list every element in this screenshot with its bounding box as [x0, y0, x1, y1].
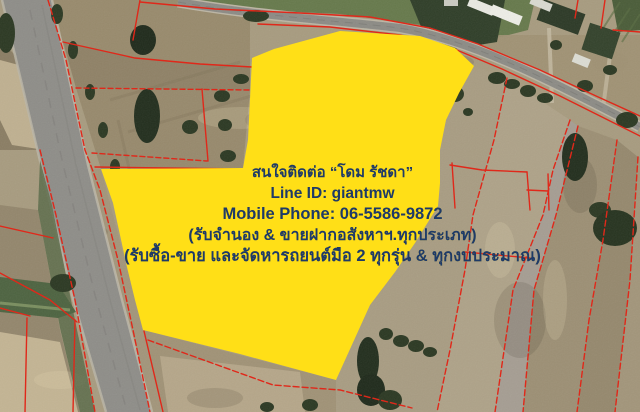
- property-listing-image: สนใจติดต่อ “โดม รัชดา” Line ID: giantmw …: [0, 0, 640, 412]
- satellite-map: [0, 0, 640, 412]
